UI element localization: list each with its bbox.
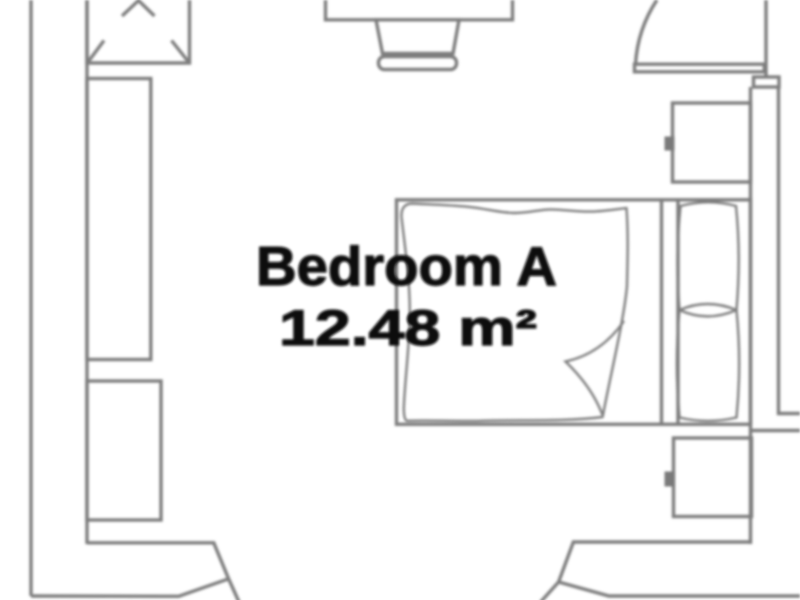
svg-text:Bedroom A: Bedroom A	[256, 235, 557, 297]
svg-text:12.48 m²: 12.48 m²	[279, 300, 537, 356]
